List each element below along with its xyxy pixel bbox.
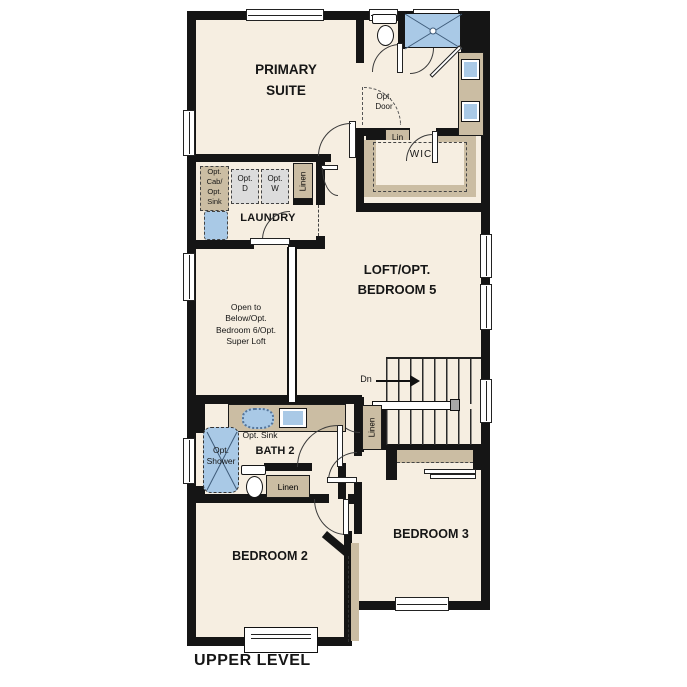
toilet-icon xyxy=(372,14,397,24)
opt-dryer-label: Opt.D xyxy=(231,174,259,194)
linen-cabinet: Linen xyxy=(266,475,310,498)
sink-basin xyxy=(283,411,303,425)
window xyxy=(480,234,492,278)
wall xyxy=(473,444,482,470)
railing xyxy=(287,247,297,402)
opt-sink-label: Opt. Sink xyxy=(236,430,284,441)
linen-cabinet: Linen xyxy=(293,163,313,199)
loft-label: LOFT/OPT.BEDROOM 5 xyxy=(330,260,464,299)
window xyxy=(183,253,195,301)
opt-door-label: Opt.Door xyxy=(368,92,400,112)
wall xyxy=(356,203,490,212)
toilet-icon xyxy=(377,25,394,46)
wall xyxy=(386,444,397,480)
closet-shelf xyxy=(397,450,473,463)
bath2-label: BATH 2 xyxy=(248,444,302,458)
toilet-icon xyxy=(246,476,263,498)
linen-label: Linen xyxy=(278,482,299,492)
wall xyxy=(196,240,254,249)
closet-slider-door xyxy=(430,474,476,479)
window xyxy=(480,379,492,423)
wall xyxy=(354,482,362,534)
open-to-below-label: Open toBelow/Opt. Bedroom 6/Opt.Super Lo… xyxy=(198,302,294,348)
bedroom2-label: BEDROOM 2 xyxy=(212,548,328,564)
window xyxy=(246,9,324,21)
window xyxy=(395,597,449,611)
plan-title: UPPER LEVEL xyxy=(194,651,354,671)
sink-icon xyxy=(242,408,274,429)
laundry-opening-dashed xyxy=(318,205,320,236)
window xyxy=(183,110,195,156)
wall xyxy=(356,11,364,63)
linen-label: Linen xyxy=(299,171,308,191)
bedroom3-label: BEDROOM 3 xyxy=(372,526,490,542)
laundry-sink-icon xyxy=(204,211,228,240)
door-leaf xyxy=(397,43,403,73)
stairs-rail-post xyxy=(450,399,460,411)
wall xyxy=(187,154,331,162)
optional-wall-dashed-line xyxy=(348,556,350,642)
wall xyxy=(187,11,196,646)
primary-suite-label: PRIMARYSUITE xyxy=(234,60,338,102)
opt-cab-sink-label: Opt.Cab/ Opt.Sink xyxy=(200,167,229,208)
shower-icon xyxy=(404,13,461,48)
sink-basin xyxy=(464,104,477,119)
stairs-down-label: Dn xyxy=(357,374,375,386)
stairs-handrail xyxy=(372,401,452,410)
down-arrow-icon xyxy=(410,375,420,387)
door-leaf xyxy=(343,499,349,535)
window xyxy=(183,438,195,484)
linen-label: Linen xyxy=(368,418,377,438)
linen-cabinet: Linen xyxy=(362,405,382,450)
stairs-lower-flight xyxy=(386,409,481,445)
door-leaf xyxy=(250,238,290,245)
opt-washer-label: Opt.W xyxy=(261,174,289,194)
wic-label: WIC xyxy=(396,149,446,162)
toilet-icon xyxy=(241,465,266,475)
bay-window xyxy=(244,627,318,653)
outside-area xyxy=(352,610,486,641)
wall xyxy=(356,128,364,212)
down-arrow-line xyxy=(376,380,412,382)
optional-wall-strip xyxy=(351,543,359,641)
window xyxy=(480,284,492,330)
floor-plan-page: Opt.Door Lin WIC Opt.Cab/ Opt.Sink Opt.D… xyxy=(0,0,687,687)
wall xyxy=(461,11,490,53)
sink-basin xyxy=(464,62,477,77)
opt-shower-label: Opt.Shower xyxy=(199,445,243,467)
door-leaf xyxy=(327,477,357,483)
